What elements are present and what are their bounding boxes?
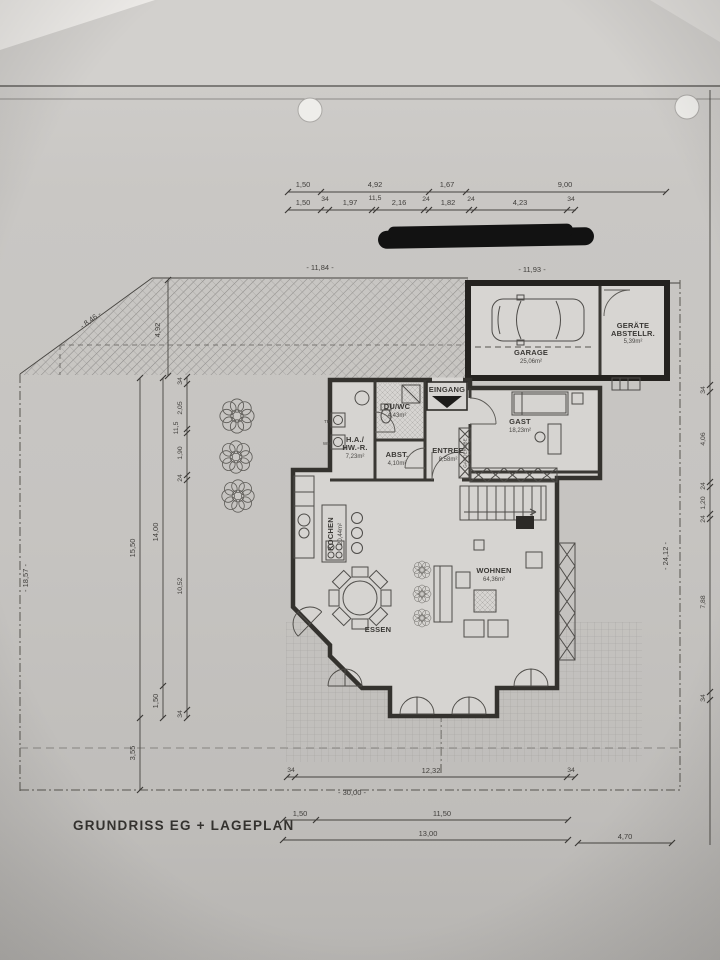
entrance-marker: EINGANG [427,382,467,410]
dim-label: 34 [700,386,707,394]
dim-label: 1,50 [293,809,308,818]
dim-label: 14,00 [151,523,160,542]
dim-site-bottom-total: - 30,00 - [338,788,366,797]
dim-label: 24 [422,196,430,203]
room-area-wohnen: 64,36m² [483,577,505,583]
room-label-abst: ABST. [386,450,409,459]
dim-site-top-left: - 11,84 - [306,263,334,272]
driveway-hatched-area [22,279,468,378]
dim-label: 15,50 [128,539,137,558]
dim-label: 11,5 [173,421,180,434]
dim-label: 24 [700,515,707,523]
room-label-essen: ESSEN [365,625,391,634]
dim-label: 10,52 [177,577,184,594]
dim-site-top-right: - 11,93 - [518,265,546,274]
dim-label: 34 [177,710,184,718]
room-area-hawr: 7,23m² [346,454,365,460]
dim-site-left-total: - 18,57 - [21,564,30,592]
room-label-wohnen: WOHNEN [476,566,511,575]
left-dimension-lines: 15,50 3,55 14,00 1,50 34 2,05 11,5 1,90 … [128,374,190,793]
dim-label: 1,50 [151,694,160,709]
dim-label: 13,00 [419,829,438,838]
dim-label: 3,55 [128,746,137,761]
dim-label: 4,06 [700,432,707,445]
room-label-geraete2: ABSTELLR. [611,329,655,338]
dim-label: 34 [287,767,295,774]
dim-label: 1,50 [296,180,311,189]
room-label-garage: GARAGE [514,348,548,357]
room-area-kochen: 20,44m² [338,523,344,545]
dim-label: 24 [467,196,475,203]
dim-label: 1,82 [441,198,456,207]
dim-label: 34 [700,694,707,702]
appliance-label-wm: WM [323,441,331,446]
punch-hole-left [298,98,322,122]
label-eingang: EINGANG [429,385,465,394]
room-label-kochen: KOCHEN [326,517,335,551]
room-area-gast: 18,23m² [509,428,531,434]
punch-hole-right [675,95,699,119]
room-label-entree: ENTREE [432,446,464,455]
dim-label: 1,97 [343,198,358,207]
dim-label: 1,90 [177,446,184,459]
dim-label: 2,16 [392,198,407,207]
dim-label: 7,88 [700,595,707,608]
room-label-gast: GAST [509,417,531,426]
room-area-garage: 25,06m² [520,359,542,365]
dim-label: 24 [177,474,184,482]
room-label-hawr2: HW.-R. [342,443,367,452]
dim-label: 34 [567,767,575,774]
dim-label: 24 [700,482,707,490]
right-dimension-line: 34 4,06 24 1,20 24 7,88 34 [700,90,713,845]
garage-block: GARAGE 25,06m² GERÄTE ABSTELLR. 5,39m² [468,283,667,390]
dim-label: 1,20 [700,496,707,509]
dim-label: 4,70 [618,832,633,841]
fireplace [516,516,534,529]
dim-label: 34 [567,196,575,203]
dim-label: 34 [321,196,329,203]
dim-label: 1,50 [296,198,311,207]
paper-artifacts [0,0,720,122]
dim-label: 9,00 [558,180,573,189]
dim-label: 11,5 [369,195,382,202]
dim-site-left-height: 4,92 [153,323,162,338]
floor-plan-drawing: 1,50 4,92 1,67 9,00 1,50 34 1,97 11,5 2,… [0,0,720,960]
room-area-geraete: 5,39m² [624,339,643,345]
dim-label: 11,50 [433,809,451,818]
dim-site-right-total: - 24,12 - [661,542,670,570]
room-area-entree: 8,58m² [439,457,458,463]
plan-title: GRUNDRISS EG + LAGEPLAN [73,818,295,833]
scanned-floor-plan-photo: 1,50 4,92 1,67 9,00 1,50 34 1,97 11,5 2,… [0,0,720,960]
dim-label: 2,05 [177,401,184,414]
bottom-dimension-lines: 34 12,32 34 1,50 11,50 13,00 4,70 [280,766,675,846]
dim-label: 4,92 [368,180,383,189]
redacted-text [378,223,594,249]
room-area-duwc: 4,43m² [388,413,407,419]
dim-label: 1,67 [440,180,455,189]
dim-label: 34 [177,377,184,385]
dim-label: 12,32 [422,766,441,775]
appliance-label-tr: TR [324,419,331,424]
top-dimension-chains: 1,50 4,92 1,67 9,00 1,50 34 1,97 11,5 2,… [285,180,669,213]
room-area-abst: 4,10m² [388,461,407,467]
room-label-duwc: DU/WC [384,402,411,411]
dim-label: 4,23 [513,198,528,207]
